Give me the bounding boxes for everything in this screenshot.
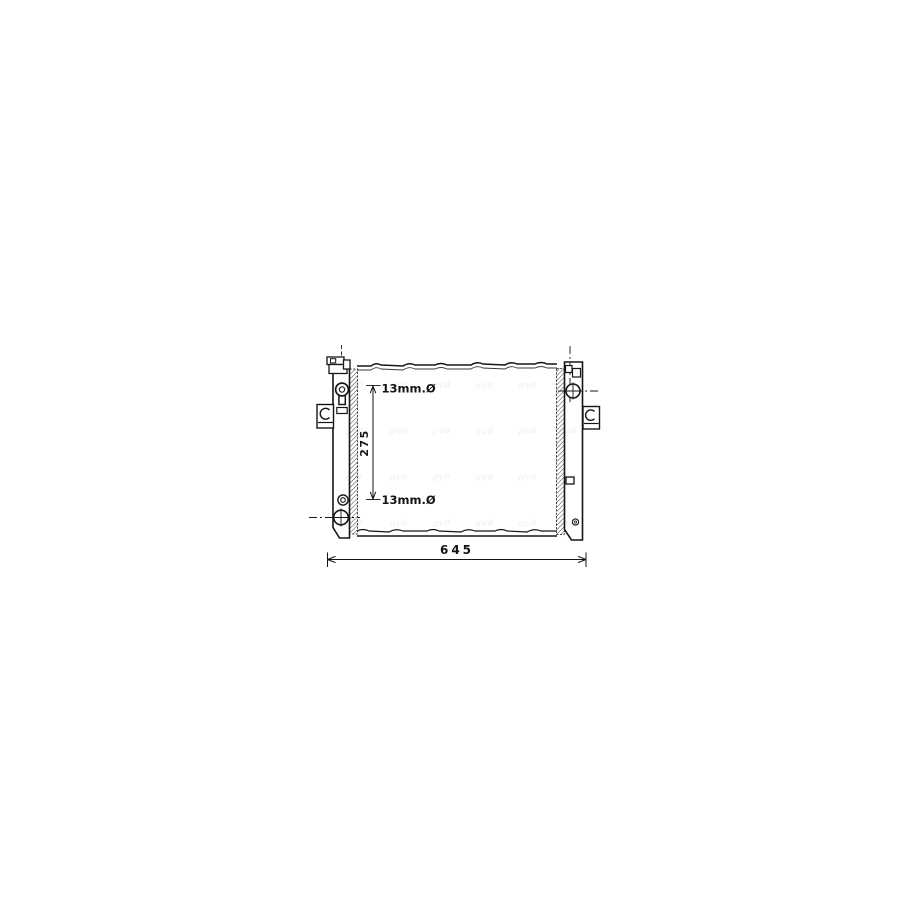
right-mounting-bracket: [583, 407, 600, 430]
catalog-page: 275 13mm.Ø 13mm.Ø 645 avaavaavaavaavaava…: [0, 0, 915, 915]
left-tank: [309, 345, 360, 538]
dimension-port-distance: 275 13mm.Ø 13mm.Ø: [358, 382, 436, 508]
right-tank: [557, 346, 600, 540]
c-hole-notch: [592, 413, 597, 418]
right-side-plate: [557, 369, 565, 535]
core-top-edge: [357, 363, 557, 367]
core-top-seam: [357, 367, 557, 371]
dimension-width-value: 645: [440, 543, 474, 557]
dimension-height-value: 275: [358, 429, 371, 456]
left-side-plate: [350, 369, 358, 534]
bottom-port-diameter-label: 13mm.Ø: [382, 493, 436, 507]
top-left-bracket: [327, 345, 350, 374]
dimension-overall-width: 645: [328, 543, 587, 567]
radiator-technical-drawing: 275 13mm.Ø 13mm.Ø 645: [0, 0, 915, 915]
left-mounting-bracket: [317, 405, 334, 429]
core-bottom-edge: [357, 530, 557, 533]
top-port-diameter-label: 13mm.Ø: [382, 382, 436, 396]
